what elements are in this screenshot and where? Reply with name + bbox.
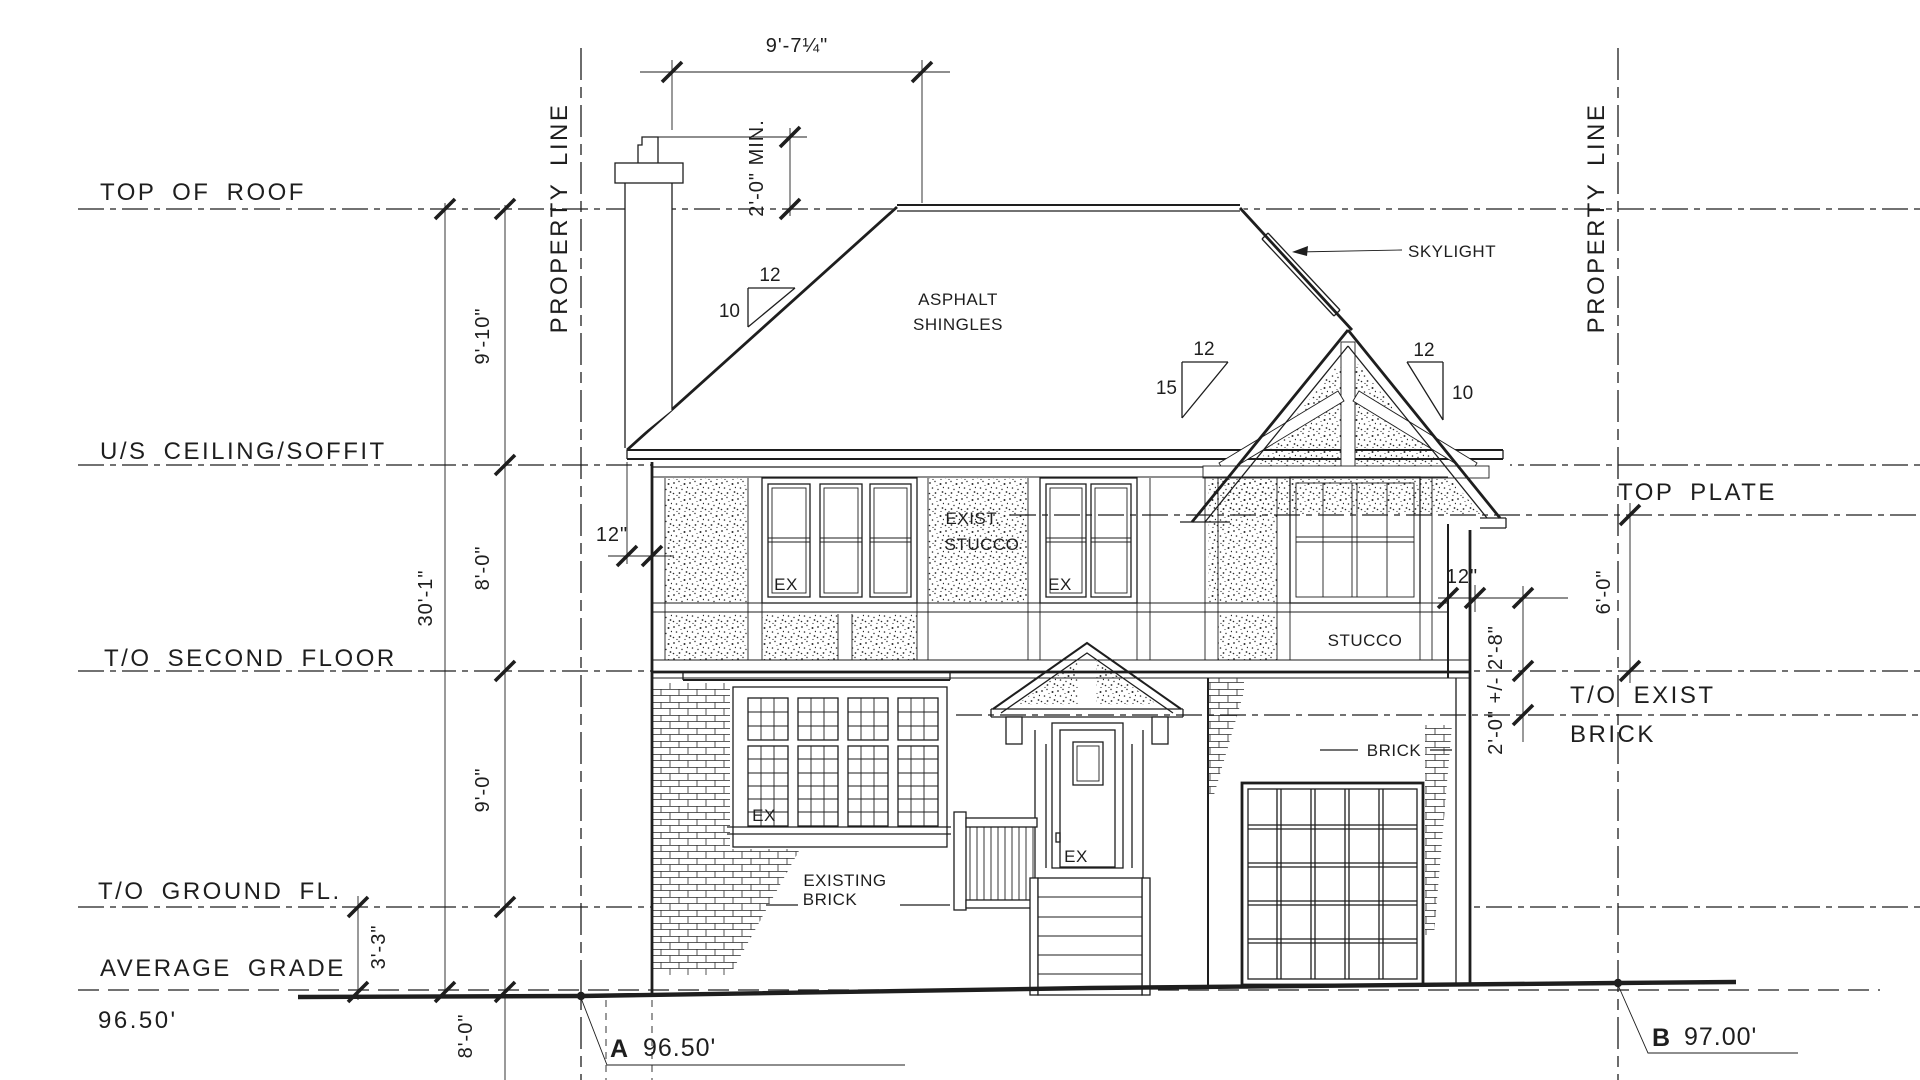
slope-main-run: 12 bbox=[759, 265, 780, 286]
point-a-elevation: 96.50' bbox=[643, 1034, 716, 1062]
gable-king-post bbox=[1341, 342, 1355, 468]
slope-gable-rise: 15 bbox=[1156, 378, 1177, 399]
label-ex-door: EX bbox=[1064, 847, 1088, 866]
skylight-arrowhead bbox=[1292, 246, 1308, 256]
chimney-flue bbox=[638, 137, 658, 163]
dim-below-grade: 8'-0" bbox=[455, 1014, 477, 1059]
slope-hip-run: 12 bbox=[1413, 340, 1434, 361]
label-to-exist-brick-2: BRICK bbox=[1570, 721, 1656, 748]
label-skylight: SKYLIGHT bbox=[1408, 242, 1496, 261]
dim-overall-height: 30'-1" bbox=[415, 570, 437, 627]
dim-eave-overhang: 12" bbox=[596, 524, 628, 546]
label-to-ground-fl: T/O GROUND FL. bbox=[98, 878, 342, 905]
label-average-grade: AVERAGE GRADE bbox=[100, 955, 346, 982]
slope-gable-run: 12 bbox=[1193, 339, 1214, 360]
point-a-leader bbox=[581, 998, 905, 1065]
dim-gable-overhang: 12" bbox=[1446, 566, 1478, 588]
dim-second-to-ground: 9'-0" bbox=[472, 768, 494, 813]
label-ex-bay-window: EX bbox=[752, 806, 776, 825]
label-to-exist-brick-1: T/O EXIST bbox=[1570, 682, 1716, 709]
label-existing-brick-1: EXISTING bbox=[803, 871, 886, 890]
point-a-tag: A bbox=[610, 1035, 628, 1063]
slope-hip-rise: 10 bbox=[1452, 383, 1473, 404]
label-property-line-left: PROPERTY LINE bbox=[546, 103, 573, 334]
entry-steps bbox=[1030, 878, 1150, 995]
dim-plate-to-floor: 6'-0" bbox=[1593, 570, 1615, 615]
label-ex-window-pair: EX bbox=[1048, 575, 1072, 594]
dim-chimney-offset: 9'-7¼" bbox=[766, 35, 829, 57]
label-top-plate: TOP PLATE bbox=[1618, 479, 1777, 506]
label-brick: BRICK bbox=[1367, 741, 1422, 760]
porch-bracket-right bbox=[1152, 717, 1168, 744]
slope-main-rise: 10 bbox=[719, 301, 740, 322]
elevation-drawing: TOP OF ROOF U/S CEILING/SOFFIT T/O SECON… bbox=[0, 0, 1920, 1080]
chimney-cap bbox=[615, 163, 683, 183]
point-b-elevation: 97.00' bbox=[1684, 1023, 1757, 1051]
newel-post bbox=[954, 812, 966, 910]
dim-ground-to-grade: 3'-3" bbox=[368, 925, 390, 970]
label-grade-elevation-left: 96.50' bbox=[98, 1007, 178, 1034]
dim-floor-to-brick: 2'-0" +/- 2'-8" bbox=[1485, 625, 1507, 755]
label-exist-stucco-2: STUCCO bbox=[945, 535, 1020, 554]
point-b-tag: B bbox=[1652, 1024, 1670, 1052]
dim-chimney-min: 2'-0" MIN. bbox=[746, 119, 768, 217]
label-top-of-roof: TOP OF ROOF bbox=[100, 179, 306, 206]
label-us-ceiling: U/S CEILING/SOFFIT bbox=[100, 438, 387, 465]
dim-roof-to-ceiling: 9'-10" bbox=[472, 308, 494, 365]
elevation-sheet: TOP OF ROOF U/S CEILING/SOFFIT T/O SECON… bbox=[0, 0, 1920, 1080]
label-exist-stucco-1: EXIST. bbox=[946, 509, 1001, 528]
dim-ceiling-to-second: 8'-0" bbox=[472, 546, 494, 591]
label-asphalt: ASPHALT bbox=[918, 290, 998, 309]
label-stucco: STUCCO bbox=[1328, 631, 1403, 650]
porch-bracket-left bbox=[1006, 717, 1022, 744]
label-shingles: SHINGLES bbox=[913, 315, 1003, 334]
label-to-second-floor: T/O SECOND FLOOR bbox=[104, 645, 397, 672]
label-property-line-right: PROPERTY LINE bbox=[1583, 103, 1610, 334]
skylight-leader bbox=[1297, 250, 1402, 252]
label-existing-brick-2: BRICK bbox=[803, 890, 858, 909]
label-ex-window-trio: EX bbox=[774, 575, 798, 594]
chimney bbox=[615, 137, 683, 448]
